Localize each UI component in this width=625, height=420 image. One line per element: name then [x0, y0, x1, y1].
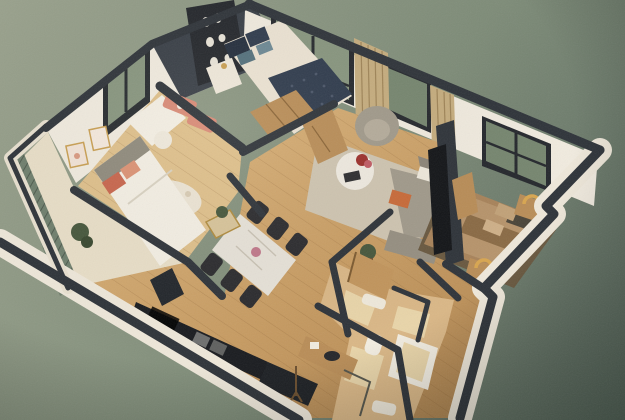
photo-grain — [0, 0, 625, 420]
floor-plan-photo — [0, 0, 625, 420]
